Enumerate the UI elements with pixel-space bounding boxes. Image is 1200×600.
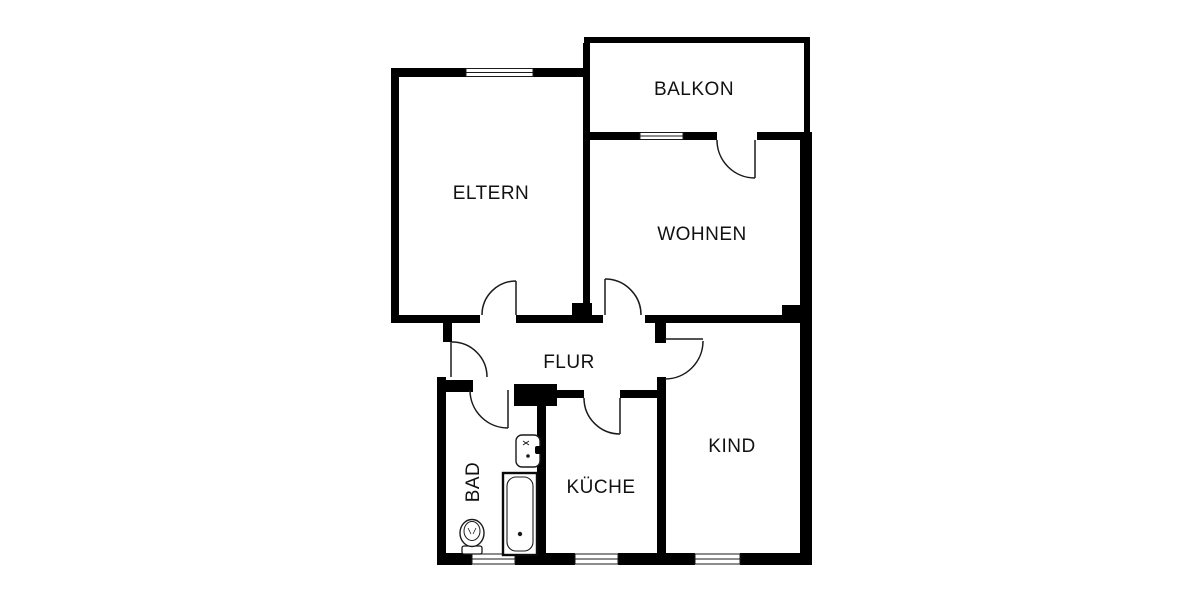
balcony-right-wall (804, 37, 810, 132)
floor-plan-canvas: ELTERN BALKON WOHNEN FLUR BAD KÜCHE KIND (0, 0, 1200, 600)
flur-top-wall-a (391, 315, 480, 323)
bad-kueche-divider (537, 406, 546, 556)
balcony-top-wall (584, 37, 810, 43)
flur-top-wall-b (516, 315, 603, 323)
window-icon-balcony (640, 133, 683, 140)
eltern-top-wall-left (391, 68, 466, 77)
room-label-wohnen: WOHNEN (657, 224, 747, 245)
wohnen-top-wall-a (583, 132, 640, 140)
entrance-jamb (443, 323, 452, 342)
bathtub-icon (503, 473, 537, 555)
wohnen-top-wall-c (757, 132, 800, 140)
bottom-wall-d (740, 553, 812, 565)
floor-plan: ELTERN BALKON WOHNEN FLUR BAD KÜCHE KIND (0, 0, 1200, 600)
kind-wall-top (655, 315, 666, 343)
eltern-wohnen-divider (583, 43, 590, 303)
door-bad (470, 390, 508, 428)
door-eltern (482, 281, 516, 315)
room-label-eltern: ELTERN (453, 183, 530, 204)
wohnen-top-wall-b (683, 132, 717, 140)
door-wohnen (605, 279, 641, 315)
bottom-wall-a (437, 553, 472, 565)
room-labels: ELTERN BALKON WOHNEN FLUR BAD KÜCHE KIND (453, 79, 756, 502)
flur-bottom-wall-b (557, 390, 584, 398)
window-icon-kind (695, 554, 740, 564)
bottom-wall-c (618, 553, 695, 565)
left-outer-wall (391, 68, 399, 323)
kind-wall-bottom (657, 377, 666, 565)
door-kueche (584, 398, 620, 434)
room-label-bad: BAD (463, 462, 484, 503)
door-kind (665, 339, 703, 379)
right-outer-wall (800, 132, 812, 565)
door-jamb-block (514, 384, 557, 406)
room-label-flur: FLUR (543, 352, 595, 373)
room-label-balkon: BALKON (654, 79, 734, 100)
room-label-kueche: KÜCHE (566, 477, 635, 498)
door-balcony (717, 140, 755, 178)
bad-left-wall (437, 377, 446, 565)
chimney-block (782, 305, 806, 323)
flur-bottom-wall-a (437, 380, 473, 392)
window-icon-kueche (575, 554, 618, 564)
window-icon-eltern (466, 69, 533, 77)
room-label-kind: KIND (708, 436, 755, 457)
door-entrance (451, 342, 487, 377)
eltern-top-wall-right (533, 68, 590, 77)
toilet-icon (460, 520, 484, 555)
